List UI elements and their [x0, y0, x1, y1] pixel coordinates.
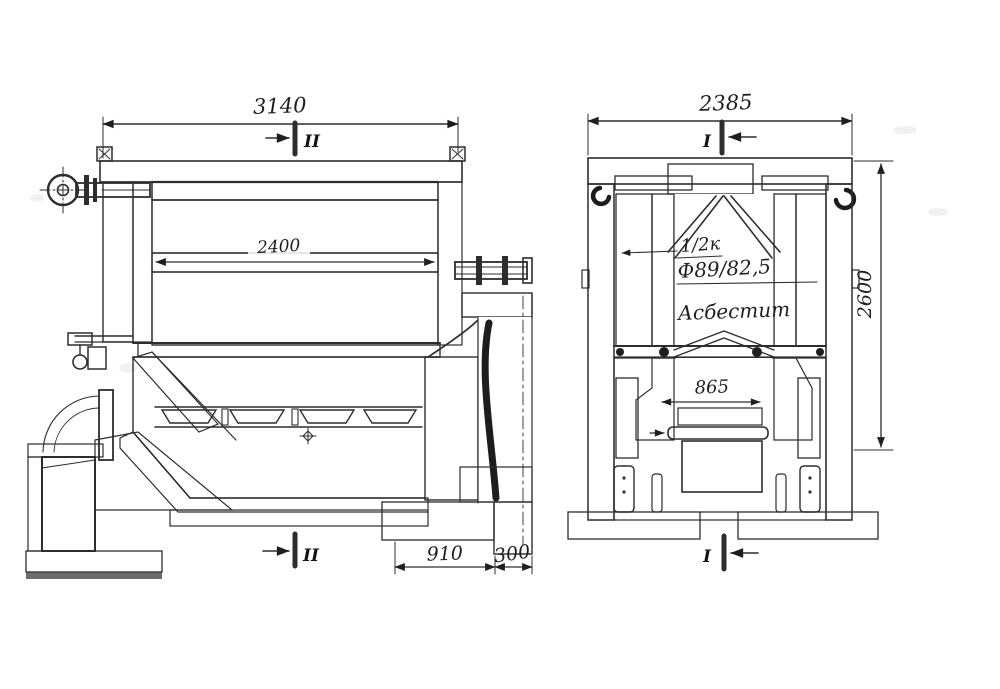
- cs-furnace: 865: [614, 358, 820, 512]
- dim-865-label: 865: [694, 376, 729, 398]
- furnace-floor: [120, 432, 428, 512]
- front-chute-insulation: [133, 352, 218, 432]
- section-mark-I-top: I: [702, 122, 756, 153]
- cs-annotations: 1/2к Ф89/82,5 Асбестит: [622, 233, 817, 325]
- dimension-foundation-left-view: 910 300: [395, 541, 532, 574]
- ash-pit-chamber: [682, 441, 762, 492]
- section-I-top-label: I: [702, 132, 712, 152]
- dim-300-label: 300: [493, 541, 532, 568]
- boiler-drawing-canvas: 3140 II: [0, 0, 1000, 689]
- left-wall-masonry: [103, 182, 133, 342]
- damper-slide: [614, 466, 634, 512]
- pipe-flange: [476, 256, 482, 285]
- header-bolt: [752, 347, 762, 357]
- steam-outlet-pipe: [455, 256, 532, 285]
- dim-2385-label: 2385: [698, 90, 753, 116]
- furnace-rear-wall: [425, 357, 478, 500]
- left-wall-insulation: [133, 182, 152, 342]
- cs-left-wall: [588, 184, 614, 520]
- dim-3140-label: 3140: [253, 93, 307, 119]
- cs-bottom-header-band: [614, 346, 826, 358]
- dimension-overall-width-left-view: 3140: [103, 93, 458, 158]
- ashpit-left-column: [28, 457, 42, 551]
- section-mark-II-bottom: II: [263, 534, 320, 566]
- longitudinal-section-view: 3140 II: [26, 93, 532, 579]
- ashpit-door-opening: [42, 457, 95, 551]
- section-II-bottom-label: II: [302, 546, 320, 566]
- right-insulation-column: [438, 182, 462, 345]
- label-pipe-diameter: Ф89/82,5: [677, 254, 771, 283]
- front-foundation: [26, 551, 162, 572]
- center-marker: [300, 428, 316, 444]
- grate-teeth: [678, 408, 762, 425]
- label-pipe-note: 1/2к: [680, 233, 721, 257]
- dim-2400-label: 2400: [256, 236, 301, 258]
- ashpit-lintel: [28, 444, 103, 457]
- dim-2600-label: 2600: [854, 270, 876, 319]
- left-air-slot: [616, 378, 638, 458]
- lifting-lugs: [97, 147, 465, 161]
- grate-roller: [668, 427, 768, 439]
- downcomer-pipe: [99, 390, 113, 460]
- rear-foundation-block: [382, 502, 494, 540]
- right-air-slot: [798, 378, 820, 458]
- right-drum-curl: [836, 190, 854, 208]
- section-I-bottom-label: I: [702, 547, 712, 567]
- section-II-top-label: II: [303, 132, 321, 152]
- top-slab: [100, 161, 462, 182]
- cross-section-view: 2385 I: [568, 90, 893, 569]
- cs-right-wall: [826, 184, 852, 520]
- dim-910-label: 910: [426, 542, 463, 565]
- front-fittings: [43, 333, 236, 460]
- section-mark-II-top: II: [266, 123, 321, 154]
- rear-wall-and-flue: [425, 293, 532, 545]
- tube-bank: 2400: [152, 182, 438, 345]
- header-bolt: [659, 347, 669, 357]
- front-foundation-base: [26, 572, 162, 579]
- grate-troughs: [155, 407, 422, 444]
- left-header-box: [615, 176, 692, 190]
- pipe-flange: [84, 175, 89, 205]
- left-drum-curl: [593, 188, 609, 204]
- section-mark-I-bottom: I: [702, 536, 758, 569]
- right-header-box: [762, 176, 828, 190]
- drawing-sheet: 3140 II: [0, 0, 1000, 689]
- dimension-overall-height: 2600: [854, 161, 893, 450]
- label-insulation: Асбестит: [675, 297, 790, 325]
